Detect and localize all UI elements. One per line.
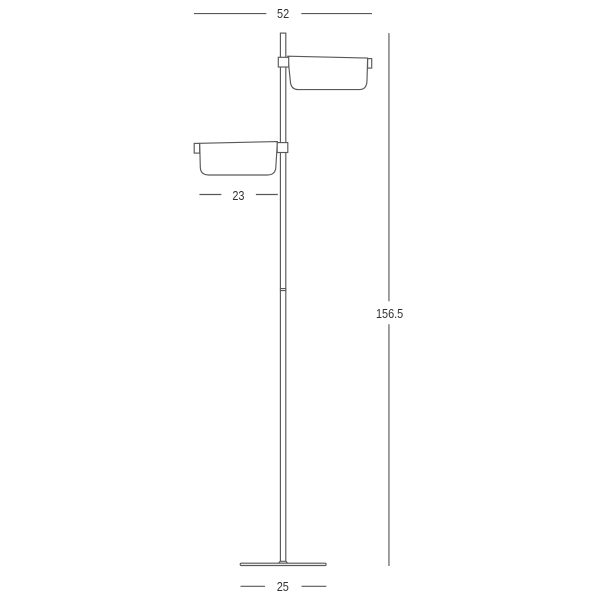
svg-text:156.5: 156.5 bbox=[376, 306, 404, 321]
svg-text:25: 25 bbox=[277, 579, 289, 594]
svg-text:23: 23 bbox=[232, 188, 244, 203]
svg-text:52: 52 bbox=[277, 6, 289, 21]
